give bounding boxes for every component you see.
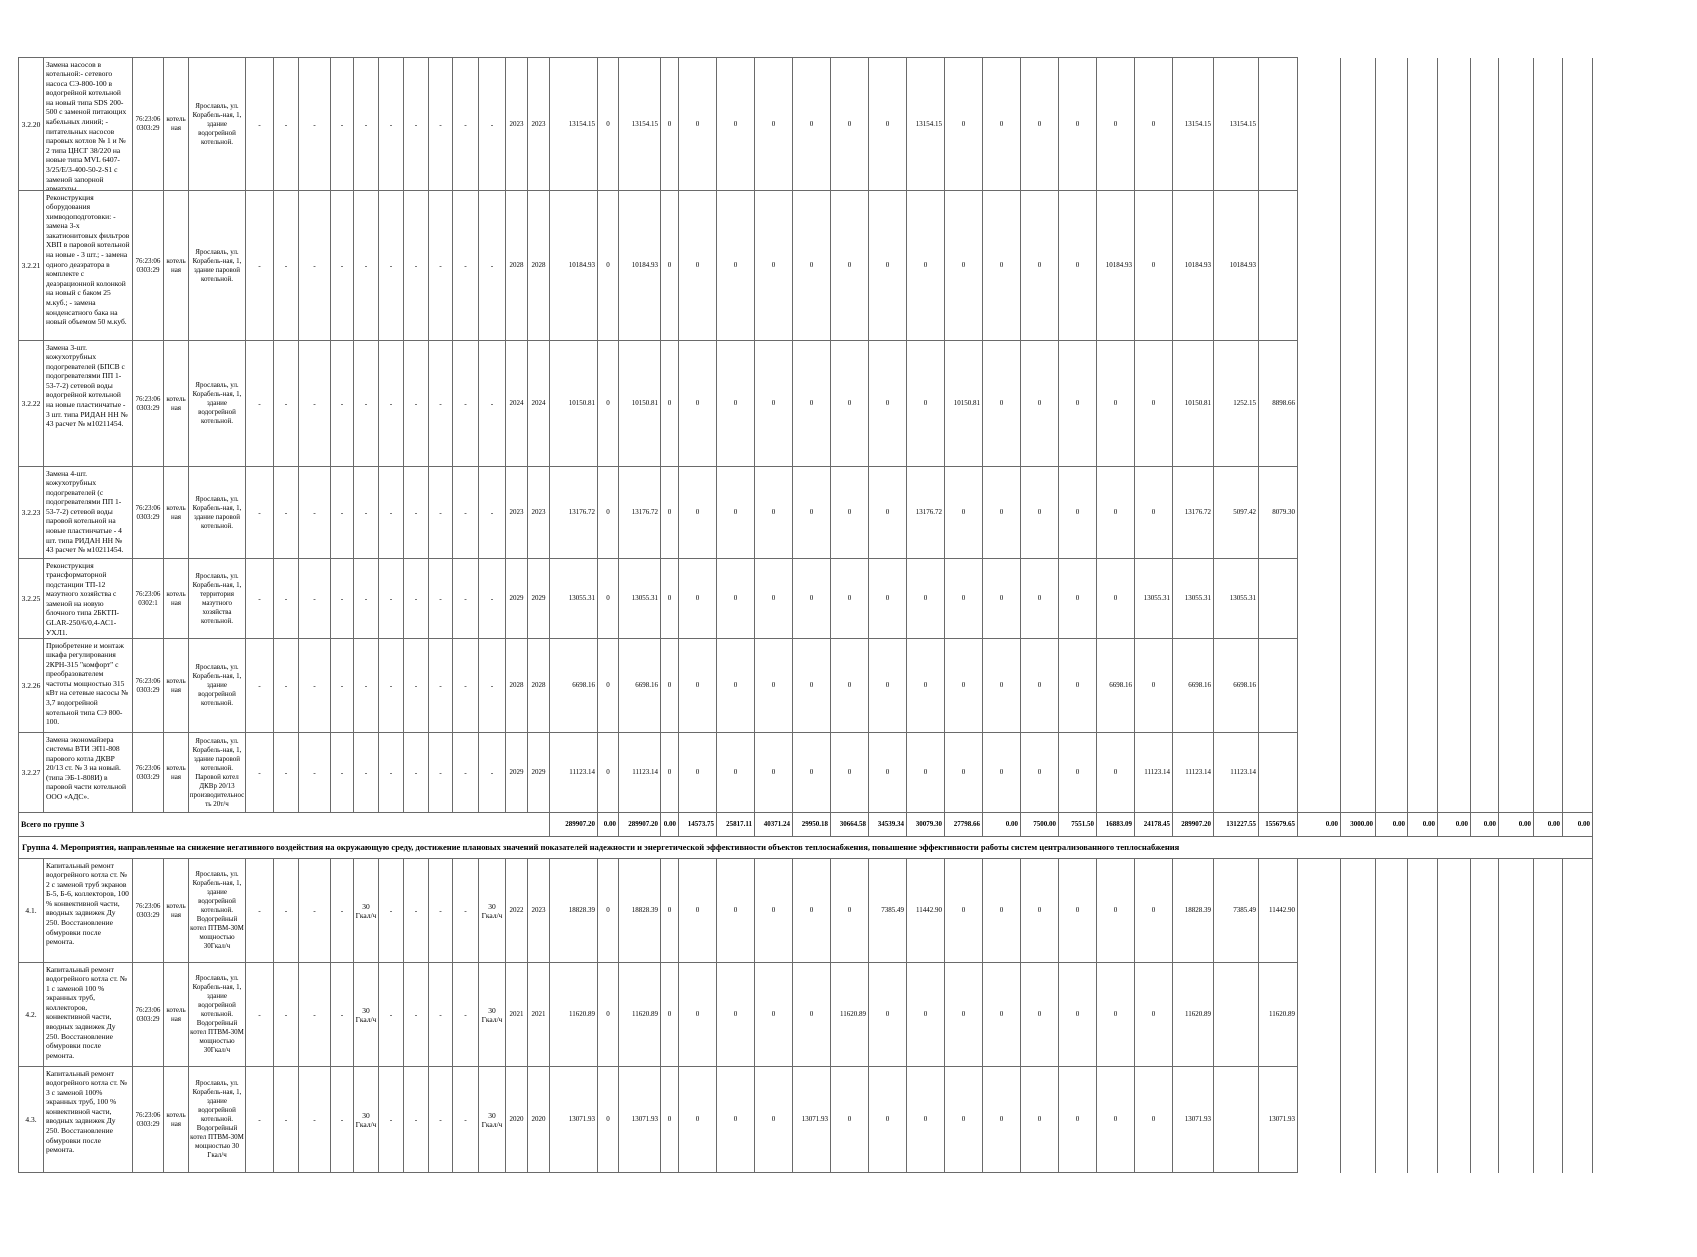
measure-description: Замена 3-шт. кожухотрубных подогревателе… [44,341,133,467]
year-start: 2028 [506,639,528,733]
characteristic-cell-10: - [479,191,506,341]
year-start: 2029 [506,733,528,813]
funding-source-cell-1 [1298,467,1341,559]
year-cost-cell-6: 0 [831,559,869,639]
year-cost-cell-2: 0 [679,341,717,467]
cadastral-number: 76:23:06 0303:29 [133,191,164,341]
characteristic-cell-4: - [331,191,354,341]
funding-source-cell-8 [1534,191,1563,341]
cost-total-cell-1: 10150.81 [550,341,598,467]
sum-cell-2: 10184.93 [1214,191,1259,341]
characteristic-cell-5: 30 Гкал/ч [354,1067,379,1173]
characteristic-cell-5: - [354,559,379,639]
funding-source-cell-5 [1438,639,1471,733]
year-cost-cell-13: 0 [1097,341,1135,467]
characteristic-cell-9: - [453,733,479,813]
year-cost-cell-3: 0 [717,1067,755,1173]
cost-total-cell-3: 18828.39 [619,859,661,963]
sum-cell-1: 11620.89 [1173,963,1214,1067]
funding-source-cell-4 [1408,58,1438,191]
year-cost-cell-12: 0 [1059,341,1097,467]
year-start: 2023 [506,467,528,559]
year-cost-cell-14: 0 [1135,191,1173,341]
measure-description: Капитальный ремонт водогрейного котла ст… [44,859,133,963]
measure-description: Замена насосов в котельной:- сетевого на… [44,58,133,191]
characteristic-cell-6: - [379,733,404,813]
funding-source-cell-9 [1563,1067,1593,1173]
table-row: 3.2.22Замена 3-шт. кожухотрубных подогре… [19,341,1593,467]
year-cost-cell-14: 0 [1135,1067,1173,1173]
year-cost-cell-2: 0 [679,58,717,191]
total-year-cell-8: 30079.30 [907,813,945,837]
total-year-cell-1: 0.00 [661,813,679,837]
sum-cell-2: 5097.42 [1214,467,1259,559]
sum-cell-3: 8079.30 [1259,467,1298,559]
year-cost-cell-7: 0 [869,1067,907,1173]
sum-cell-2 [1214,1067,1259,1173]
year-cost-cell-1: 0 [661,733,679,813]
year-cost-cell-10: 0 [983,639,1021,733]
year-cost-cell-1: 0 [661,1067,679,1173]
sum-cell-3: 8898.66 [1259,341,1298,467]
document-page: 3.2.20Замена насосов в котельной:- сетев… [0,57,1697,1257]
funding-source-cell-5 [1438,467,1471,559]
characteristic-cell-10: 30 Гкал/ч [479,859,506,963]
year-cost-cell-10: 0 [983,559,1021,639]
cost-total-cell-2: 0 [598,859,619,963]
year-start: 2023 [506,58,528,191]
group-total-label: Всего по группе 3 [19,813,550,837]
sum-cell-1: 13071.93 [1173,1067,1214,1173]
characteristic-cell-3: - [299,191,331,341]
funding-source-cell-1 [1298,559,1341,639]
total-year-cell-7: 34539.34 [869,813,907,837]
year-cost-cell-13: 0 [1097,559,1135,639]
year-cost-cell-12: 0 [1059,559,1097,639]
year-cost-cell-10: 0 [983,467,1021,559]
year-cost-cell-12: 0 [1059,58,1097,191]
funding-source-cell-5 [1438,1067,1471,1173]
characteristic-cell-8: - [429,467,453,559]
year-cost-cell-7: 0 [869,559,907,639]
sum-cell-2: 1252.15 [1214,341,1259,467]
funding-source-cell-6 [1471,1067,1499,1173]
characteristic-cell-2: - [274,859,299,963]
year-cost-cell-13: 0 [1097,859,1135,963]
row-number: 3.2.22 [19,341,44,467]
total-year-cell-6: 30664.58 [831,813,869,837]
year-cost-cell-10: 0 [983,191,1021,341]
funding-source-cell-1 [1298,859,1341,963]
funding-source-cell-3 [1376,1067,1408,1173]
year-cost-cell-5: 0 [793,859,831,963]
measure-description: Замена 4-шт. кожухотрубных подогревателе… [44,467,133,559]
year-cost-cell-13: 0 [1097,58,1135,191]
object-address: Ярославль, ул. Корабель-ная, 1, здание п… [189,191,246,341]
funding-source-cell-7 [1499,191,1534,341]
characteristic-cell-7: - [404,859,429,963]
total-funding-cell-1: 0.00 [1298,813,1341,837]
year-cost-cell-3: 0 [717,191,755,341]
characteristic-cell-4: - [331,58,354,191]
characteristic-cell-9: - [453,859,479,963]
characteristic-cell-5: 30 Гкал/ч [354,859,379,963]
object-address: Ярославль, ул. Корабель-ная, 1, здание в… [189,963,246,1067]
characteristic-cell-6: - [379,963,404,1067]
funding-source-cell-9 [1563,58,1593,191]
year-cost-cell-6: 0 [831,58,869,191]
cost-total-cell-3: 13055.31 [619,559,661,639]
year-cost-cell-7: 0 [869,58,907,191]
funding-source-cell-2 [1341,859,1376,963]
year-cost-cell-8: 11442.90 [907,859,945,963]
year-cost-cell-1: 0 [661,963,679,1067]
characteristic-cell-2: - [274,58,299,191]
total-year-cell-3: 25817.11 [717,813,755,837]
measure-description: Реконструкция оборудования химводоподгот… [44,191,133,341]
characteristic-cell-3: - [299,733,331,813]
characteristic-cell-3: - [299,467,331,559]
characteristic-cell-6: - [379,859,404,963]
funding-source-cell-4 [1408,559,1438,639]
funding-source-cell-5 [1438,733,1471,813]
year-cost-cell-4: 0 [755,559,793,639]
table-row: 3.2.27Замена экономайзера системы ВТИ ЭП… [19,733,1593,813]
year-cost-cell-7: 0 [869,639,907,733]
cost-total-cell-2: 0 [598,467,619,559]
characteristic-cell-9: - [453,58,479,191]
year-cost-cell-1: 0 [661,341,679,467]
cadastral-number: 76:23:06 0303:29 [133,963,164,1067]
cost-total-cell-1: 10184.93 [550,191,598,341]
funding-source-cell-1 [1298,639,1341,733]
year-start: 2029 [506,559,528,639]
characteristic-cell-6: - [379,191,404,341]
funding-source-cell-3 [1376,733,1408,813]
characteristic-cell-2: - [274,467,299,559]
year-cost-cell-4: 0 [755,341,793,467]
year-cost-cell-1: 0 [661,191,679,341]
funding-source-cell-1 [1298,963,1341,1067]
funding-source-cell-5 [1438,58,1471,191]
cost-total-cell-2: 0 [598,733,619,813]
characteristic-cell-7: - [404,191,429,341]
year-cost-cell-6: 11620.89 [831,963,869,1067]
year-cost-cell-11: 0 [1021,58,1059,191]
cadastral-number: 76:23:06 0302:1 [133,559,164,639]
total-year-cell-5: 29950.18 [793,813,831,837]
year-cost-cell-14: 0 [1135,859,1173,963]
funding-source-cell-8 [1534,559,1563,639]
cost-total-cell-1: 11620.89 [550,963,598,1067]
year-cost-cell-14: 13055.31 [1135,559,1173,639]
funding-source-cell-8 [1534,467,1563,559]
year-cost-cell-10: 0 [983,1067,1021,1173]
year-cost-cell-5: 0 [793,963,831,1067]
funding-source-cell-9 [1563,341,1593,467]
year-cost-cell-6: 0 [831,467,869,559]
year-cost-cell-10: 0 [983,733,1021,813]
funding-source-cell-4 [1408,467,1438,559]
year-end: 2029 [528,559,550,639]
year-cost-cell-12: 0 [1059,1067,1097,1173]
year-cost-cell-13: 6698.16 [1097,639,1135,733]
funding-source-cell-4 [1408,963,1438,1067]
object-type: котель ная [164,341,189,467]
funding-source-cell-3 [1376,58,1408,191]
year-cost-cell-9: 0 [945,859,983,963]
funding-source-cell-1 [1298,341,1341,467]
cost-total-cell-1: 13055.31 [550,559,598,639]
cost-total-cell-1: 13154.15 [550,58,598,191]
year-cost-cell-6: 0 [831,733,869,813]
object-type: котель ная [164,1067,189,1173]
characteristic-cell-8: - [429,1067,453,1173]
year-cost-cell-4: 0 [755,467,793,559]
total-year-cell-12: 7551.50 [1059,813,1097,837]
year-cost-cell-1: 0 [661,559,679,639]
year-cost-cell-6: 0 [831,859,869,963]
characteristic-cell-1: - [246,859,274,963]
sum-cell-1: 13055.31 [1173,559,1214,639]
year-cost-cell-5: 13071.93 [793,1067,831,1173]
measure-description: Капитальный ремонт водогрейного котла ст… [44,1067,133,1173]
cadastral-number: 76:23:06 0303:29 [133,467,164,559]
characteristic-cell-4: - [331,963,354,1067]
year-cost-cell-5: 0 [793,467,831,559]
funding-source-cell-9 [1563,467,1593,559]
funding-source-cell-2 [1341,191,1376,341]
object-type: котель ная [164,639,189,733]
year-cost-cell-7: 0 [869,341,907,467]
year-cost-cell-8: 0 [907,341,945,467]
characteristic-cell-6: - [379,341,404,467]
year-cost-cell-11: 0 [1021,467,1059,559]
year-cost-cell-9: 0 [945,467,983,559]
cost-total-cell-2: 0 [598,341,619,467]
year-cost-cell-14: 0 [1135,341,1173,467]
funding-source-cell-8 [1534,1067,1563,1173]
year-cost-cell-9: 10150.81 [945,341,983,467]
total-sum-cell-2: 131227.55 [1214,813,1259,837]
year-cost-cell-6: 0 [831,1067,869,1173]
characteristic-cell-2: - [274,1067,299,1173]
row-number: 3.2.27 [19,733,44,813]
year-cost-cell-2: 0 [679,639,717,733]
characteristic-cell-6: - [379,58,404,191]
year-cost-cell-8: 0 [907,559,945,639]
cost-total-cell-2: 0 [598,191,619,341]
characteristic-cell-1: - [246,639,274,733]
characteristic-cell-6: - [379,559,404,639]
group4-header-label: Группа 4. Мероприятия, направленные на с… [19,837,1593,859]
total-cost-cell-3: 289907.20 [619,813,661,837]
characteristic-cell-3: - [299,639,331,733]
characteristic-cell-3: - [299,341,331,467]
total-year-cell-10: 0.00 [983,813,1021,837]
cost-total-cell-1: 13176.72 [550,467,598,559]
table-row: 3.2.26Приобретение и монтаж шкафа регули… [19,639,1593,733]
cost-total-cell-1: 13071.93 [550,1067,598,1173]
year-cost-cell-14: 11123.14 [1135,733,1173,813]
year-start: 2024 [506,341,528,467]
total-funding-cell-8: 0.00 [1534,813,1563,837]
year-cost-cell-2: 0 [679,191,717,341]
year-cost-cell-11: 0 [1021,859,1059,963]
total-sum-cell-3: 155679.65 [1259,813,1298,837]
characteristic-cell-2: - [274,963,299,1067]
table-row: 4.3.Капитальный ремонт водогрейного котл… [19,1067,1593,1173]
funding-source-cell-4 [1408,639,1438,733]
cadastral-number: 76:23:06 0303:29 [133,341,164,467]
year-end: 2023 [528,58,550,191]
year-cost-cell-8: 0 [907,639,945,733]
sum-cell-1: 10184.93 [1173,191,1214,341]
measure-description: Капитальный ремонт водогрейного котла ст… [44,963,133,1067]
funding-source-cell-6 [1471,191,1499,341]
year-cost-cell-5: 0 [793,341,831,467]
year-cost-cell-14: 0 [1135,963,1173,1067]
object-type: котель ная [164,963,189,1067]
funding-source-cell-3 [1376,341,1408,467]
cost-total-cell-3: 10150.81 [619,341,661,467]
measure-description: Приобретение и монтаж шкафа регулировани… [44,639,133,733]
year-cost-cell-8: 0 [907,191,945,341]
year-cost-cell-5: 0 [793,58,831,191]
characteristic-cell-6: - [379,1067,404,1173]
year-cost-cell-12: 0 [1059,639,1097,733]
year-cost-cell-3: 0 [717,639,755,733]
characteristic-cell-7: - [404,559,429,639]
year-cost-cell-7: 0 [869,963,907,1067]
year-cost-cell-13: 0 [1097,733,1135,813]
funding-source-cell-7 [1499,341,1534,467]
characteristic-cell-7: - [404,467,429,559]
characteristic-cell-8: - [429,639,453,733]
year-cost-cell-1: 0 [661,639,679,733]
sum-cell-2: 6698.16 [1214,639,1259,733]
characteristic-cell-1: - [246,191,274,341]
funding-source-cell-4 [1408,191,1438,341]
characteristic-cell-8: - [429,963,453,1067]
year-cost-cell-13: 0 [1097,1067,1135,1173]
characteristic-cell-2: - [274,639,299,733]
sum-cell-3 [1259,191,1298,341]
characteristic-cell-4: - [331,341,354,467]
funding-source-cell-6 [1471,58,1499,191]
funding-source-cell-4 [1408,859,1438,963]
row-number: 3.2.23 [19,467,44,559]
cost-total-cell-3: 10184.93 [619,191,661,341]
row-number: 4.2. [19,963,44,1067]
sum-cell-2: 11123.14 [1214,733,1259,813]
row-number: 3.2.20 [19,58,44,191]
year-cost-cell-7: 0 [869,467,907,559]
year-cost-cell-9: 0 [945,559,983,639]
cadastral-number: 76:23:06 0303:29 [133,1067,164,1173]
year-cost-cell-7: 0 [869,191,907,341]
year-cost-cell-1: 0 [661,58,679,191]
characteristic-cell-7: - [404,639,429,733]
year-cost-cell-12: 0 [1059,467,1097,559]
characteristic-cell-5: - [354,467,379,559]
year-cost-cell-10: 0 [983,859,1021,963]
funding-source-cell-8 [1534,859,1563,963]
characteristic-cell-3: - [299,559,331,639]
measure-description: Реконструкция трансформаторной подстанци… [44,559,133,639]
sum-cell-3: 11442.90 [1259,859,1298,963]
characteristic-cell-8: - [429,559,453,639]
year-cost-cell-4: 0 [755,58,793,191]
object-address: Ярославль, ул. Корабель-ная, 1, здание в… [189,58,246,191]
year-cost-cell-3: 0 [717,963,755,1067]
funding-source-cell-9 [1563,733,1593,813]
characteristic-cell-10: - [479,639,506,733]
sum-cell-3 [1259,559,1298,639]
object-address: Ярославль, ул. Корабель-ная, 1, здание п… [189,467,246,559]
sum-cell-1: 18828.39 [1173,859,1214,963]
cost-total-cell-1: 18828.39 [550,859,598,963]
year-cost-cell-5: 0 [793,733,831,813]
sum-cell-3: 11620.89 [1259,963,1298,1067]
sum-cell-1: 10150.81 [1173,341,1214,467]
year-cost-cell-3: 0 [717,467,755,559]
year-cost-cell-3: 0 [717,58,755,191]
funding-source-cell-5 [1438,559,1471,639]
sum-cell-2: 13055.31 [1214,559,1259,639]
sum-cell-1: 11123.14 [1173,733,1214,813]
table-row: 3.2.25Реконструкция трансформаторной под… [19,559,1593,639]
funding-source-cell-6 [1471,859,1499,963]
total-funding-cell-5: 0.00 [1438,813,1471,837]
year-cost-cell-3: 0 [717,559,755,639]
year-cost-cell-8: 0 [907,963,945,1067]
cadastral-number: 76:23:06 0303:29 [133,733,164,813]
object-address: Ярославль, ул. Корабель-ная, 1, здание п… [189,733,246,813]
object-address: Ярославль, ул. Корабель-ная, 1, здание в… [189,639,246,733]
funding-source-cell-7 [1499,1067,1534,1173]
year-cost-cell-5: 0 [793,559,831,639]
total-year-cell-9: 27798.66 [945,813,983,837]
characteristic-cell-1: - [246,963,274,1067]
year-start: 2021 [506,963,528,1067]
sum-cell-2: 13154.15 [1214,58,1259,191]
cadastral-number: 76:23:06 0303:29 [133,859,164,963]
object-address: Ярославль, ул. Корабель-ная, 1, здание в… [189,1067,246,1173]
year-cost-cell-2: 0 [679,467,717,559]
sum-cell-3 [1259,58,1298,191]
funding-source-cell-6 [1471,639,1499,733]
characteristic-cell-10: - [479,733,506,813]
program-table-body: 3.2.20Замена насосов в котельной:- сетев… [19,58,1593,1173]
row-number: 3.2.21 [19,191,44,341]
funding-source-cell-6 [1471,467,1499,559]
funding-source-cell-3 [1376,559,1408,639]
funding-source-cell-5 [1438,191,1471,341]
characteristic-cell-4: - [331,733,354,813]
sum-cell-2: 7385.49 [1214,859,1259,963]
characteristic-cell-7: - [404,1067,429,1173]
characteristic-cell-3: - [299,963,331,1067]
year-cost-cell-3: 0 [717,733,755,813]
year-end: 2021 [528,963,550,1067]
funding-source-cell-2 [1341,58,1376,191]
characteristic-cell-2: - [274,341,299,467]
year-cost-cell-9: 0 [945,639,983,733]
year-cost-cell-4: 0 [755,1067,793,1173]
funding-source-cell-3 [1376,639,1408,733]
funding-source-cell-2 [1341,733,1376,813]
